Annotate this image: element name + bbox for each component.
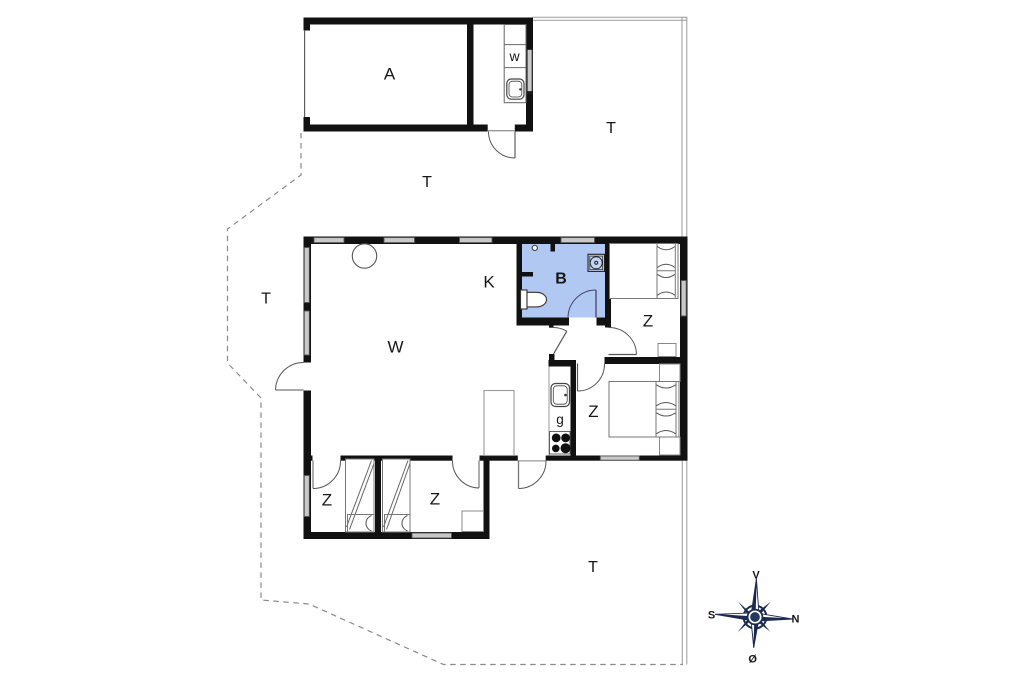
svg-text:Z: Z bbox=[322, 491, 332, 510]
svg-text:Z: Z bbox=[430, 490, 440, 509]
svg-text:T: T bbox=[606, 120, 616, 137]
svg-text:N: N bbox=[792, 614, 800, 626]
svg-text:T: T bbox=[422, 174, 432, 191]
svg-text:T: T bbox=[261, 291, 271, 308]
svg-text:Z: Z bbox=[643, 312, 653, 331]
svg-text:A: A bbox=[384, 65, 396, 84]
svg-text:S: S bbox=[708, 610, 715, 622]
svg-text:V: V bbox=[752, 570, 760, 582]
svg-text:w: w bbox=[508, 48, 520, 64]
svg-text:W: W bbox=[387, 338, 403, 357]
svg-text:T: T bbox=[588, 559, 598, 576]
svg-text:K: K bbox=[483, 273, 495, 292]
svg-text:Z: Z bbox=[588, 402, 598, 421]
svg-text:Ø: Ø bbox=[748, 654, 757, 666]
svg-text:B: B bbox=[555, 271, 567, 288]
svg-text:g: g bbox=[556, 412, 564, 427]
